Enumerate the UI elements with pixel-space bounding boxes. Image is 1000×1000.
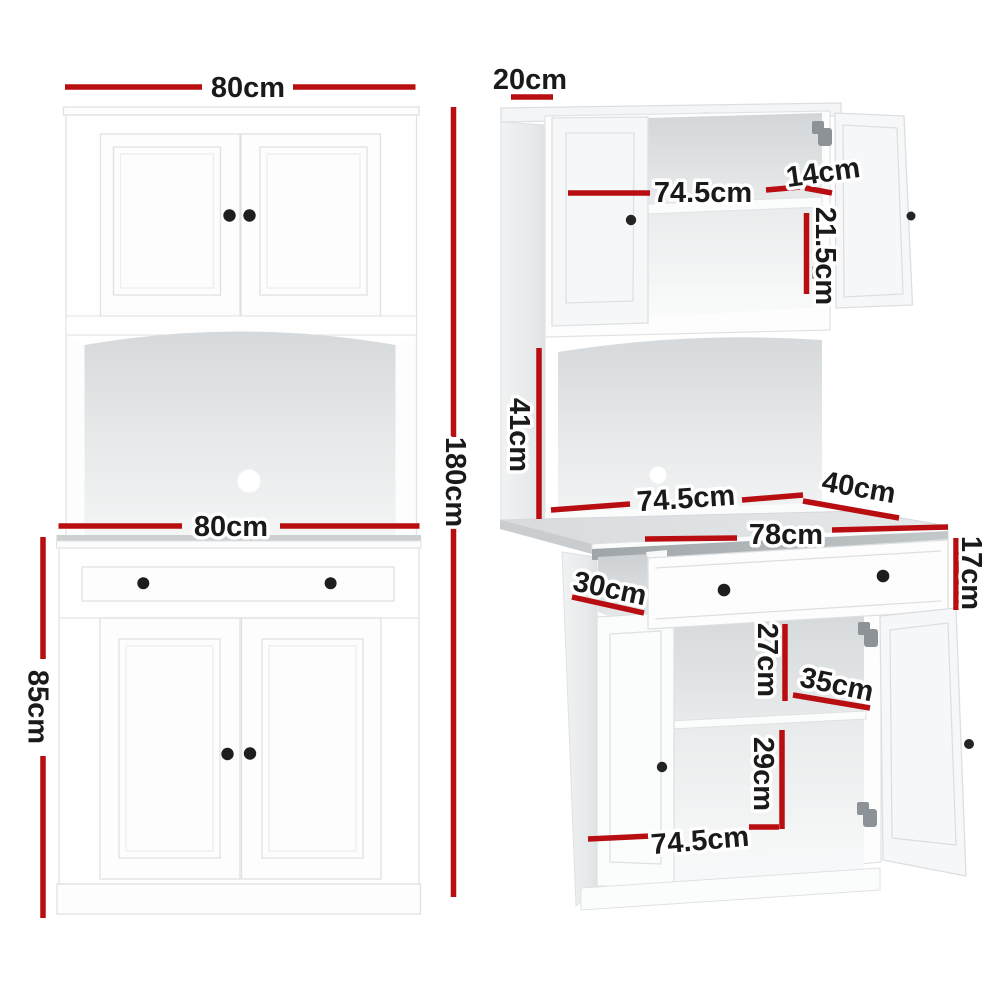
svg-text:29cm: 29cm — [747, 737, 779, 811]
svg-text:74.5cm: 74.5cm — [636, 480, 736, 519]
svg-text:17cm: 17cm — [955, 536, 987, 610]
svg-text:41cm: 41cm — [503, 398, 535, 472]
svg-text:20cm: 20cm — [493, 64, 567, 96]
svg-text:85cm: 85cm — [22, 670, 54, 744]
svg-text:80cm: 80cm — [211, 72, 285, 104]
svg-text:74.5cm: 74.5cm — [654, 177, 752, 209]
svg-text:80cm: 80cm — [194, 511, 268, 543]
svg-text:78cm: 78cm — [749, 519, 823, 551]
svg-text:180cm: 180cm — [439, 437, 471, 527]
svg-text:27cm: 27cm — [751, 623, 783, 697]
svg-text:21.5cm: 21.5cm — [809, 207, 841, 305]
